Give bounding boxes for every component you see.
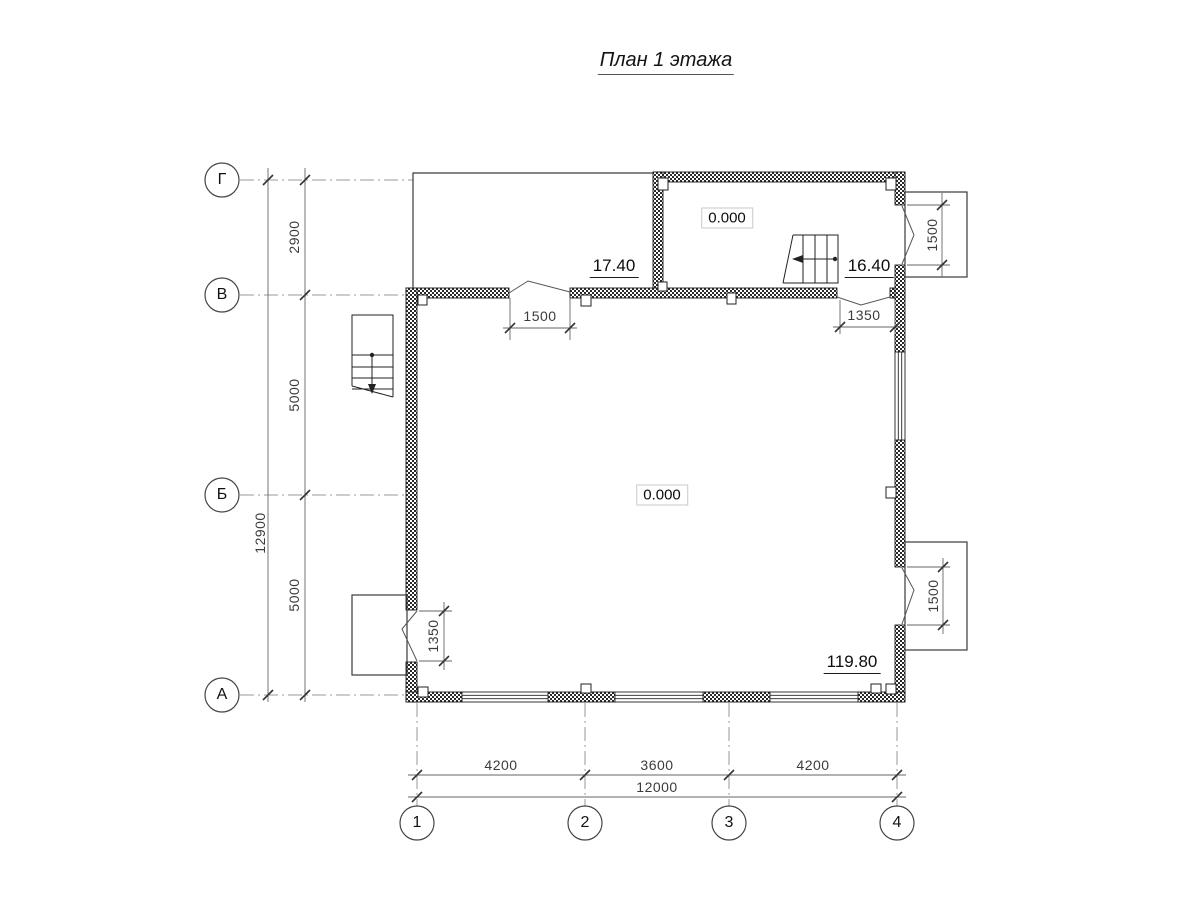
door-swing-porch-upper-right (902, 206, 914, 264)
window-bottom-2 (615, 692, 703, 702)
axis-label-col-1: 1 (413, 814, 422, 832)
axis-circles (205, 163, 914, 840)
elevation-119-80: 119.80 (824, 652, 881, 674)
elevation-main-room-0000: 0.000 (636, 485, 688, 506)
axis-label-row-a: А (217, 686, 228, 704)
page-title: План 1 этажа (598, 49, 734, 75)
axis-label-row-g: Г (218, 171, 227, 189)
walls (406, 172, 905, 702)
porch-left (352, 595, 407, 675)
door-swing-entry-top (509, 281, 570, 293)
floor-plan-drawing (0, 0, 1200, 900)
dim-left-total-12900: 12900 (252, 512, 268, 553)
dim-porch-upper-right-1500: 1500 (924, 218, 940, 251)
dim-door-upper-right-1350: 1350 (847, 307, 880, 323)
window-bottom-3 (770, 692, 858, 702)
door-swing-porch-lower-right (902, 568, 914, 624)
axis-label-col-3: 3 (725, 814, 734, 832)
dim-porch-left-1350: 1350 (425, 619, 441, 652)
axis-grid-lines (240, 180, 897, 806)
elevation-16-40: 16.40 (845, 256, 894, 278)
dim-door-entry-top-1500: 1500 (523, 308, 556, 324)
stairs-left (352, 315, 393, 397)
dim-bottom-3600: 3600 (640, 757, 673, 773)
door-swing-upper-right (837, 297, 890, 305)
axis-label-row-b: Б (217, 486, 228, 504)
dim-bottom-4200-right: 4200 (796, 757, 829, 773)
dim-left-5000-upper: 5000 (286, 378, 302, 411)
dim-bottom-total-12000: 12000 (636, 779, 677, 795)
dim-porch-lower-right-1500: 1500 (925, 579, 941, 612)
dim-left-2900: 2900 (286, 220, 302, 253)
floor-plan-page: План 1 этажа Г В Б А 1 2 3 4 2900 5000 5… (0, 0, 1200, 900)
window-bottom-1 (462, 692, 548, 702)
windows (462, 352, 905, 702)
axis-label-col-4: 4 (893, 814, 902, 832)
axis-label-row-v: В (217, 286, 228, 304)
elevation-17-40: 17.40 (590, 256, 639, 278)
window-right (895, 352, 905, 440)
stair-arrow-head (792, 255, 803, 263)
door-swing-porch-left (402, 611, 417, 661)
elevation-upper-room-0000: 0.000 (701, 208, 753, 229)
stairs-upper (783, 235, 838, 283)
axis-label-col-2: 2 (581, 814, 590, 832)
dim-left-5000-lower: 5000 (286, 578, 302, 611)
dim-bottom-4200-left: 4200 (484, 757, 517, 773)
